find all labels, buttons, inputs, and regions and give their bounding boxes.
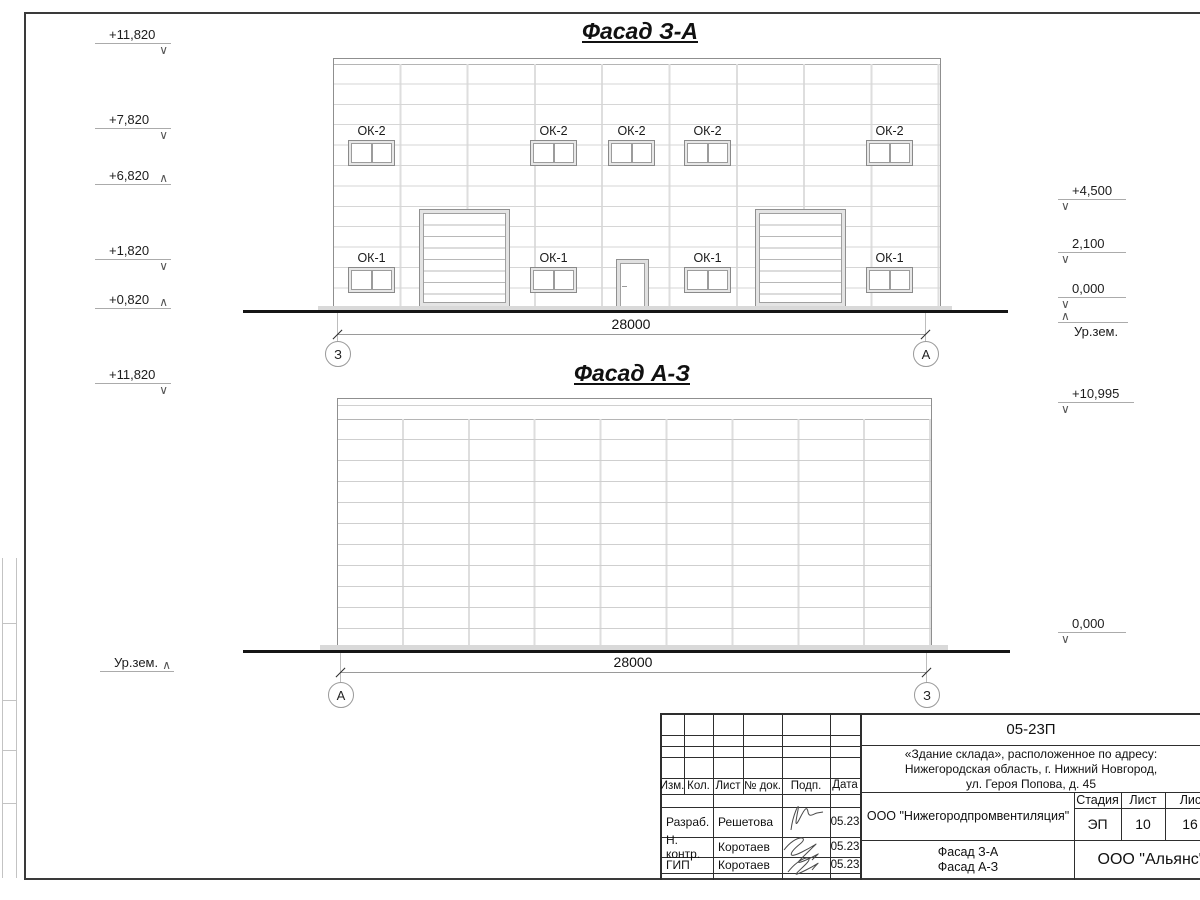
col-header-izm: Изм. [660, 778, 684, 794]
elevation-arrow-icon: ∨ [1061, 403, 1070, 415]
signature-korotaev [776, 830, 830, 880]
extension-line [340, 653, 341, 683]
axis-bubble-3: З [325, 341, 351, 367]
elevation-arrow-icon: ∧ [159, 172, 168, 184]
name-nkontr: Коротаев [714, 837, 782, 857]
window-frame [866, 140, 913, 166]
elevation-mark: ∨ +7,820 [95, 112, 171, 129]
stage-label: Стадия [1074, 792, 1121, 808]
window-frame [348, 140, 395, 166]
tb-grid-line [660, 735, 860, 736]
address-line: «Здание склада», расположенное по адресу… [905, 747, 1157, 762]
sectional-gate [419, 209, 510, 307]
dimension-line [337, 334, 925, 335]
doc-code: 05-23П [862, 714, 1200, 745]
window-frame [866, 267, 913, 293]
address-line: ул. Героя Попова, д. 45 [966, 777, 1096, 792]
attr-col-divider [2, 750, 16, 751]
window-label: ОК-2 [693, 124, 721, 138]
window-label: ОК-1 [693, 251, 721, 265]
attr-col-divider [2, 803, 16, 804]
window-label: ОК-1 [539, 251, 567, 265]
elevation-arrow-icon: ∧ [1061, 310, 1070, 322]
sheets-total: 16 [1165, 808, 1200, 840]
window-frame [684, 267, 731, 293]
attr-col-divider [2, 623, 16, 624]
facade1-title: Фасад З-А [500, 18, 780, 45]
facade2-building [337, 398, 932, 652]
dimension-value: 28000 [583, 654, 683, 670]
window-label: ОК-1 [875, 251, 903, 265]
col-header-kol: Кол. [684, 778, 713, 794]
frame-left [24, 12, 26, 880]
tb-grid-line [660, 873, 860, 874]
window-frame [530, 140, 577, 166]
axis-bubble-3: З [914, 682, 940, 708]
window-frame [684, 140, 731, 166]
elevation-arrow-icon: ∨ [159, 44, 168, 56]
entrance-door [616, 259, 649, 309]
window-frame [530, 267, 577, 293]
facade2-ground-line [243, 650, 1010, 653]
attr-col-line [16, 558, 17, 878]
axis-bubble-a: А [328, 682, 354, 708]
elevation-mark: ∨ +1,820 [95, 243, 171, 260]
attr-col-divider [2, 700, 16, 701]
window-frame [348, 267, 395, 293]
window-ok1: ОК-1 [866, 267, 913, 293]
window-label: ОК-2 [539, 124, 567, 138]
extension-line [926, 653, 927, 683]
name-razrab: Решетова [714, 807, 782, 837]
elevation-mark: ∨ 0,000 [1058, 616, 1126, 633]
window-ok2: ОК-2 [866, 140, 913, 166]
facade2-panel-grid [338, 419, 931, 651]
extension-line [337, 313, 338, 343]
elevation-mark: ∨ 2,100 [1058, 236, 1126, 253]
elevation-mark: ∨ +11,820 [95, 367, 171, 384]
sectional-gate [755, 209, 846, 307]
drawing-name-line: Фасад З-А [938, 845, 998, 860]
date-gip: 05.23 [830, 857, 860, 873]
col-header-podp: Подп. [782, 778, 830, 794]
window-ok2: ОК-2 [348, 140, 395, 166]
elevation-arrow-icon: ∨ [1061, 633, 1070, 645]
window-ok1: ОК-1 [348, 267, 395, 293]
tb-grid-line [660, 746, 860, 747]
facade1-ground-line [243, 310, 1008, 313]
date-razrab: 05.23 [830, 807, 860, 837]
date-nkontr: 05.23 [830, 837, 860, 857]
window-ok2: ОК-2 [530, 140, 577, 166]
elevation-mark: ∧ +0,820 [95, 292, 171, 309]
ground-level-mark: ∧ Ур.зем. [1058, 310, 1128, 339]
elevation-arrow-icon: ∨ [159, 129, 168, 141]
elevation-arrow-icon: ∧ [162, 659, 171, 671]
elevation-mark: ∨ 0,000 [1058, 281, 1126, 298]
window-label: ОК-1 [357, 251, 385, 265]
tb-grid-line [660, 757, 860, 758]
elevation-arrow-icon: ∧ [159, 296, 168, 308]
drawing-names: Фасад З-А Фасад А-З [862, 841, 1074, 878]
window-ok2: ОК-2 [684, 140, 731, 166]
elevation-arrow-icon: ∨ [1061, 200, 1070, 212]
window-label: ОК-2 [875, 124, 903, 138]
address-line: Нижегородская область, г. Нижний Новгоро… [905, 762, 1157, 777]
attr-col-line [2, 558, 3, 878]
role-nkontr: Н. контр. [662, 837, 713, 857]
frame-bottom [24, 878, 1200, 880]
drawing-name-line: Фасад А-З [938, 860, 998, 875]
tb-grid-line [660, 794, 860, 795]
sheet-number: 10 [1121, 808, 1165, 840]
dimension-line [340, 672, 926, 673]
col-header-ndok: № док. [743, 778, 782, 794]
window-ok1: ОК-1 [684, 267, 731, 293]
stage-value: ЭП [1074, 808, 1121, 840]
sheet-label: Лист [1121, 792, 1165, 808]
name-gip: Коротаев [714, 857, 782, 873]
project-address: «Здание склада», расположенное по адресу… [862, 746, 1200, 792]
org-name: ООО "Нижегородпромвентиляция" [862, 794, 1074, 838]
elevation-mark: ∨ +11,820 [95, 27, 171, 44]
company-name: ООО "Альянс" [1076, 841, 1200, 878]
frame-top [24, 12, 1200, 14]
ground-level-mark: ∧ Ур.зем. [100, 655, 174, 672]
elevation-mark: ∨ +10,995 [1058, 386, 1134, 403]
elevation-mark: ∧ +6,820 [95, 168, 171, 185]
axis-bubble-a: А [913, 341, 939, 367]
window-ok1: ОК-1 [530, 267, 577, 293]
sheets-label: Листов [1165, 792, 1200, 808]
drawing-sheet: Фасад З-А ОК-2 ОК-2 ОК-2 ОК-2 ОК-2 ОК-1 … [0, 0, 1200, 900]
role-gip: ГИП [662, 857, 713, 873]
elevation-arrow-icon: ∨ [159, 260, 168, 272]
elevation-arrow-icon: ∨ [159, 384, 168, 396]
facade2-parapet [338, 399, 931, 420]
facade2-title: Фасад А-З [492, 360, 772, 387]
door-handle [622, 286, 627, 287]
dimension-value: 28000 [581, 316, 681, 332]
col-header-list: Лист [713, 778, 743, 794]
extension-line [925, 313, 926, 343]
elevation-mark: ∨ +4,500 [1058, 183, 1126, 200]
window-label: ОК-2 [617, 124, 645, 138]
window-ok2: ОК-2 [608, 140, 655, 166]
col-header-data: Дата [830, 775, 860, 794]
elevation-arrow-icon: ∨ [1061, 253, 1070, 265]
window-frame [608, 140, 655, 166]
window-label: ОК-2 [357, 124, 385, 138]
